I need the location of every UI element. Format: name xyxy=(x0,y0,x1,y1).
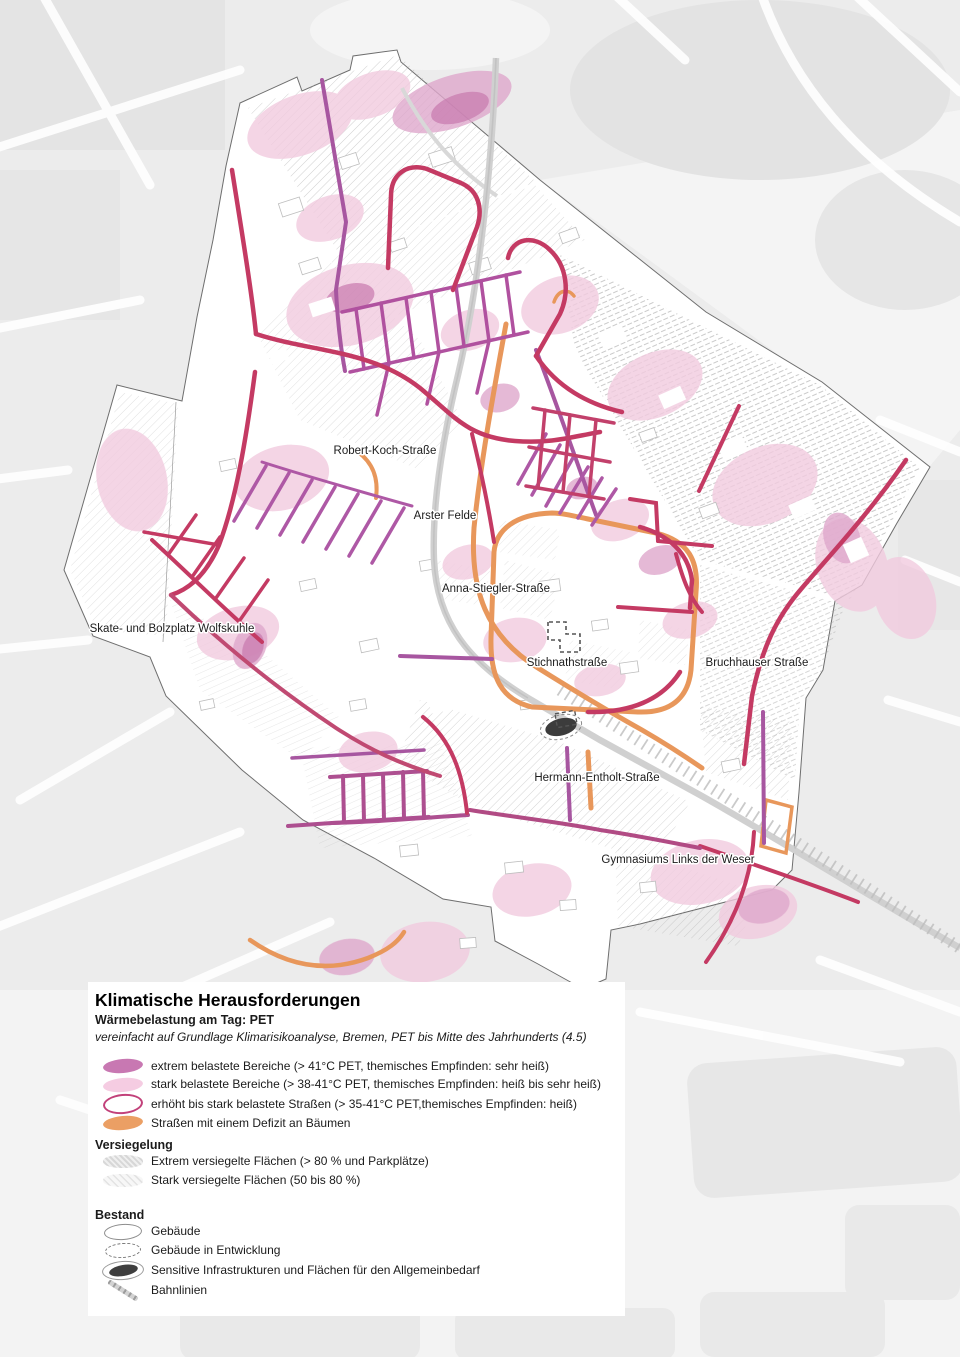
map-label-arster-felde: Arster Felde xyxy=(414,510,477,522)
tree-deficit-street-swatch xyxy=(102,1115,143,1132)
legend-source-note: vereinfacht auf Grundlage Klimarisikoana… xyxy=(95,1030,615,1045)
map-label-anna-stiegler-strasse: Anna-Stiegler-Straße xyxy=(442,583,550,595)
legend-item-label: Straßen mit einem Defizit an Bäumen xyxy=(151,1116,350,1131)
legend-item-label: Extrem versiegelte Flächen (> 80 % und P… xyxy=(151,1154,429,1169)
building-in-development-icon xyxy=(105,1242,142,1259)
building-icon xyxy=(103,1222,142,1241)
railway-icon xyxy=(107,1280,138,1302)
legend-item-building-development: Gebäude in Entwicklung xyxy=(95,1241,615,1260)
legend-sealing-heading: Versiegelung xyxy=(95,1137,615,1153)
climate-map-poster: Robert-Koch-Straße Arster Felde Anna-Sti… xyxy=(0,0,960,1357)
map-label-stichnathstrasse: Stichnathstraße xyxy=(527,657,608,669)
strong-sealing-swatch xyxy=(103,1174,143,1187)
legend-heat-section: extrem belastete Bereiche (> 41°C PET, t… xyxy=(95,1057,615,1133)
map-label-wolfskuhle: Skate- und Bolzplatz Wolfskuhle xyxy=(90,623,255,635)
legend-item-strong-sealing: Stark versiegelte Flächen (50 bis 80 %) xyxy=(95,1171,615,1190)
sensitive-infrastructure-icon xyxy=(101,1260,144,1282)
legend-item-label: stark belastete Bereiche (> 38-41°C PET,… xyxy=(151,1077,601,1092)
map-label-robert-koch-strasse: Robert-Koch-Straße xyxy=(334,445,437,457)
extreme-sealing-swatch xyxy=(103,1155,143,1168)
map-label-bruchhauser-strasse: Bruchhauser Straße xyxy=(706,657,809,669)
legend-item-label: extrem belastete Bereiche (> 41°C PET, t… xyxy=(151,1059,549,1074)
strong-heat-area-swatch xyxy=(102,1076,143,1093)
legend-item-label: erhöht bis stark belastete Straßen (> 35… xyxy=(151,1097,577,1112)
legend-item-sensitive-infrastructure: Sensitive Infrastrukturen und Flächen fü… xyxy=(95,1260,615,1282)
legend-item-street-heat: erhöht bis stark belastete Straßen (> 35… xyxy=(95,1094,615,1114)
extreme-heat-area-swatch xyxy=(102,1058,143,1075)
legend-item-label: Gebäude in Entwicklung xyxy=(151,1243,280,1258)
legend-item-railway: Bahnlinien xyxy=(95,1282,615,1301)
map-label-hermann-entholt-strasse: Hermann-Entholt-Straße xyxy=(534,772,659,784)
legend-item-label: Sensitive Infrastrukturen und Flächen fü… xyxy=(151,1263,480,1278)
legend-item-label: Stark versiegelte Flächen (50 bis 80 %) xyxy=(151,1173,360,1188)
legend-item-tree-deficit: Straßen mit einem Defizit an Bäumen xyxy=(95,1114,615,1133)
legend-item-extreme-sealing: Extrem versiegelte Flächen (> 80 % und P… xyxy=(95,1153,615,1172)
legend-item-label: Bahnlinien xyxy=(151,1283,207,1298)
map-label-gymnasiums-links-der-weser: Gymnasiums Links der Weser xyxy=(601,854,754,866)
legend-item-building: Gebäude xyxy=(95,1223,615,1242)
street-heat-outline-swatch xyxy=(102,1092,144,1115)
legend-item-strong-heat: stark belastete Bereiche (> 38-41°C PET,… xyxy=(95,1076,615,1095)
legend-panel: Klimatische Herausforderungen Wärmebelas… xyxy=(88,982,625,1316)
legend-title: Klimatische Herausforderungen xyxy=(95,990,615,1011)
legend-stock-heading: Bestand xyxy=(95,1207,615,1223)
legend-subtitle: Wärmebelastung am Tag: PET xyxy=(95,1013,615,1028)
legend-item-extreme-heat: extrem belastete Bereiche (> 41°C PET, t… xyxy=(95,1057,615,1076)
legend-item-label: Gebäude xyxy=(151,1224,200,1239)
